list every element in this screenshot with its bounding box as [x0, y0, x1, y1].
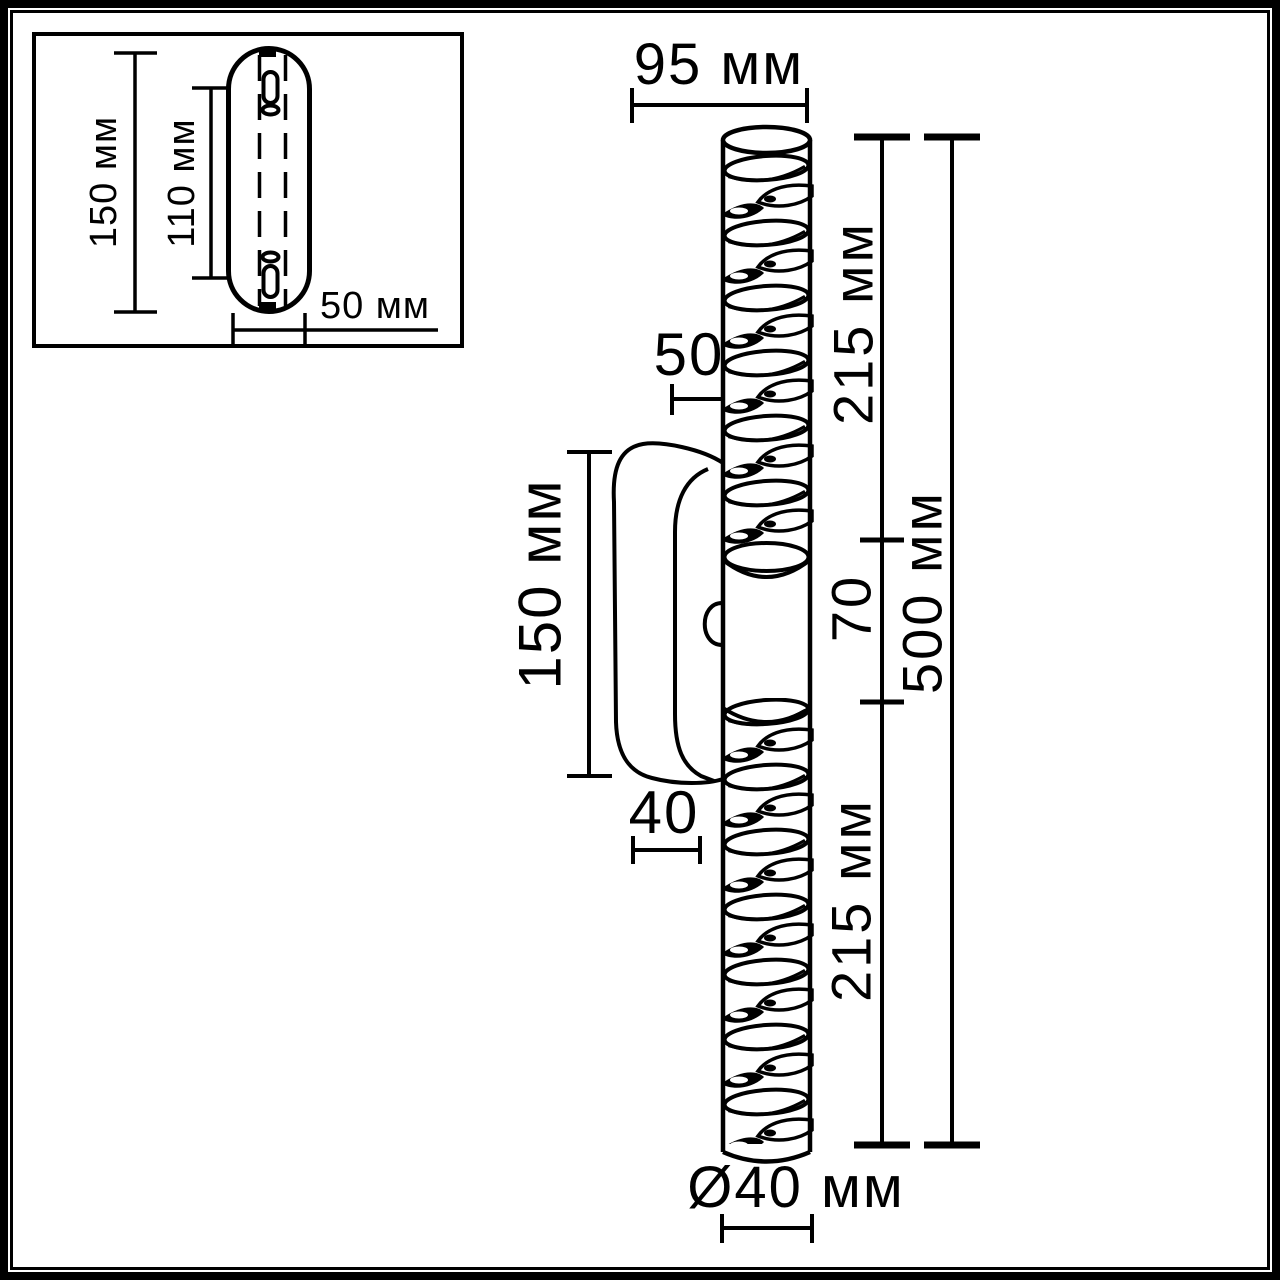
mount-knob: [705, 603, 722, 645]
main-view: 95 мм 50 150 мм 40 Ø40 мм: [507, 32, 981, 1243]
inset-plate-width-label: 50 мм: [320, 285, 430, 327]
tube-top-rim: [723, 127, 810, 153]
dim-bracket-offset-bottom: 40: [629, 779, 700, 864]
lower-segment-label: 215 мм: [820, 798, 883, 1002]
backplate-view: [229, 49, 310, 312]
bracket-height-label: 150 мм: [507, 478, 574, 689]
dim-diameter: Ø40 мм: [687, 1155, 905, 1243]
backplate-outline: [229, 49, 310, 312]
lamp-tube: [705, 127, 812, 1162]
technical-drawing: 150 мм 110 мм 50 мм: [0, 0, 1280, 1280]
depth-label: 95 мм: [634, 32, 804, 97]
dim-wall-offset-top: 50: [654, 321, 725, 415]
inset-panel: 150 мм 110 мм 50 мм: [34, 34, 462, 347]
upper-segment-label: 215 мм: [822, 221, 885, 425]
texture-upper-cup: [725, 543, 809, 571]
dim-depth: 95 мм: [632, 32, 807, 123]
backplate-bottom-tab: [259, 302, 276, 310]
diameter-label: Ø40 мм: [687, 1155, 905, 1220]
middle-segment-label: 70: [820, 574, 883, 642]
drawing-canvas: 150 мм 110 мм 50 мм: [0, 0, 1280, 1280]
backplate-top-tab: [259, 49, 276, 57]
bracket-offset-bottom-label: 40: [629, 779, 700, 846]
dim-total-height: 500 мм: [891, 137, 981, 1145]
inset-plate-height-label: 150 мм: [83, 116, 125, 248]
wall-offset-top-label: 50: [654, 321, 725, 388]
total-height-label: 500 мм: [891, 490, 954, 694]
tube-texture: [721, 153, 812, 1153]
inset-holes-spacing-label: 110 мм: [161, 118, 203, 247]
dim-bracket-height: 150 мм: [507, 452, 613, 776]
